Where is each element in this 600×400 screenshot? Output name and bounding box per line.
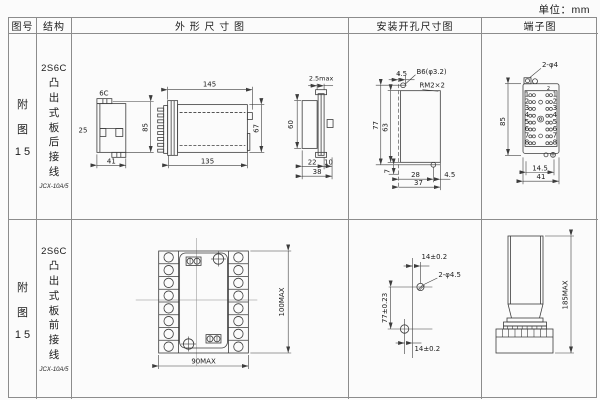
dim-label: 6C	[99, 90, 108, 98]
dim-lines-view1	[97, 102, 154, 169]
outline-cell-row1: 6C 25 85 41 145 135 67 2.5max 60 22 10 3…	[72, 34, 349, 220]
model-label: 2S6C	[41, 246, 67, 257]
dim-label: 77	[372, 121, 380, 130]
socket-terminal-grid	[159, 253, 249, 352]
hole-layout	[388, 258, 438, 358]
thread-size-label: RM2×2	[419, 82, 444, 90]
fixing-hole-top	[526, 79, 530, 83]
side-profile-view	[97, 99, 126, 158]
mounting-cell-row2: 14±0.2 2-φ4.5 77±0.23 14±0.2	[349, 220, 482, 399]
dim-label: 4.5	[396, 70, 407, 78]
mounting-drawing-row1: 4.5 B6(φ3.2) RM2×2 77 63 7 28 4.5 37	[349, 34, 481, 219]
dim-lines-view2	[168, 87, 265, 169]
mounting-style-label: 凸出式板后接线	[48, 76, 61, 180]
socket-collar-ticks	[508, 326, 542, 329]
dim-label: 100MAX	[278, 287, 286, 316]
rear-view	[302, 90, 333, 158]
datasheet-page: 单位：mm 图号 结构 外 形 尺 寸 图 安装开孔尺寸图 端子图 附 图 1 …	[0, 0, 600, 400]
dim-label: 22	[308, 158, 317, 166]
outline-drawing-row2: 100MAX 90MAX	[72, 220, 348, 399]
socket-front-view	[159, 251, 249, 353]
dim-label: 4.5	[444, 171, 455, 179]
pin-comb	[158, 108, 164, 152]
hole-leader-line	[424, 278, 437, 285]
hole-size-label: B6(φ3.2)	[416, 68, 446, 76]
dim-label: 14±0.2	[415, 345, 441, 353]
dim-label: 38	[313, 168, 322, 176]
dim-label: 25	[79, 126, 88, 134]
dim-label: 28	[411, 171, 420, 179]
hole-size-label: 2-φ4.5	[438, 271, 461, 279]
dim-label: 60	[287, 120, 295, 129]
header-cell-structure: 结构	[37, 18, 72, 34]
mounting-cell-row1: 4.5 B6(φ3.2) RM2×2 77 63 7 28 4.5 37	[349, 34, 482, 220]
header-cell-terminal: 端子图	[482, 18, 598, 34]
dim-label: 67	[252, 124, 260, 133]
socket-base-ticks	[502, 329, 546, 337]
outline-cell-row2: 100MAX 90MAX	[72, 220, 349, 399]
figure-cell-row2: 附 图 1 5	[9, 220, 37, 399]
relay-code-label: JCX-10A/5	[39, 367, 68, 373]
hole-size-label: 2-φ4	[542, 61, 559, 69]
corner-label: 2	[547, 86, 550, 92]
outline-drawing-row1: 6C 25 85 41 145 135 67 2.5max 60 22 10 3…	[72, 34, 348, 219]
dim-label: 90MAX	[191, 357, 216, 365]
height-dim-lines	[545, 236, 574, 353]
svg-text:8: 8	[525, 139, 529, 147]
structure-cell-row1: 2S6C 凸出式板后接线 JCX-10A/5	[37, 34, 72, 220]
mounting-style-label: 凸出式板前接线	[48, 259, 61, 363]
terminal-drawing-row1: 1122334455667788 2-φ4 2 85 14.5 41	[482, 34, 598, 219]
dim-label: 10	[324, 158, 333, 166]
figure-cell-row1: 附 图 1 5	[9, 34, 37, 220]
mounting-dim-labels: 4.5 B6(φ3.2) RM2×2 77 63 7 28 4.5 37	[372, 68, 456, 187]
header-cell-outline: 外 形 尺 寸 图	[72, 18, 349, 34]
dim-label: 145	[203, 81, 216, 89]
model-label: 2S6C	[41, 63, 67, 74]
dim-label: 14±0.2	[421, 253, 447, 261]
dim-label: 185MAX	[562, 280, 570, 309]
relay-code-label: JCX-10A/5	[39, 184, 68, 190]
dim-label: 37	[414, 179, 423, 187]
dim-label: 85	[499, 117, 507, 126]
relay-side-view	[158, 101, 253, 156]
unit-label: 单位：mm	[539, 2, 591, 17]
terminal-drawing-row2: 185MAX	[482, 220, 598, 399]
mounting-drawing-row2: 14±0.2 2-φ4.5 77±0.23 14±0.2	[349, 220, 481, 399]
dim-label: 63	[382, 123, 390, 132]
terminal-cell-row2: 185MAX	[482, 220, 598, 399]
mounting-dim-labels-row2: 14±0.2 2-φ4.5 77±0.23 14±0.2	[381, 253, 461, 353]
header-cell-mounting: 安装开孔尺寸图	[349, 18, 482, 34]
dim-label: 2.5max	[309, 75, 334, 83]
hole-leader-line	[529, 68, 541, 78]
structure-cell-row2: 2S6C 凸出式板前接线 JCX-10A/5	[37, 220, 72, 399]
svg-text:8: 8	[553, 139, 557, 147]
dim-label: 41	[107, 157, 116, 165]
terminal-cell-row1: 1122334455667788 2-φ4 2 85 14.5 41	[482, 34, 598, 220]
dim-label: 85	[142, 123, 150, 132]
spec-table: 图号 结构 外 形 尺 寸 图 安装开孔尺寸图 端子图 附 图 1 5 2S6C…	[8, 17, 597, 398]
dim-label: 135	[201, 157, 214, 165]
relay-on-socket-side-view	[496, 236, 553, 353]
socket-dim-labels: 100MAX 90MAX	[191, 287, 286, 365]
dim-label: 41	[537, 173, 546, 181]
header-cell-figure: 图号	[9, 18, 37, 34]
dim-label: 14.5	[532, 164, 548, 172]
terminal-contact-grid: 1122334455667788	[525, 90, 558, 146]
dim-label: 7	[384, 169, 392, 173]
terminal-dim-labels-row2: 185MAX	[562, 280, 570, 309]
dim-label: 77±0.23	[381, 293, 389, 323]
